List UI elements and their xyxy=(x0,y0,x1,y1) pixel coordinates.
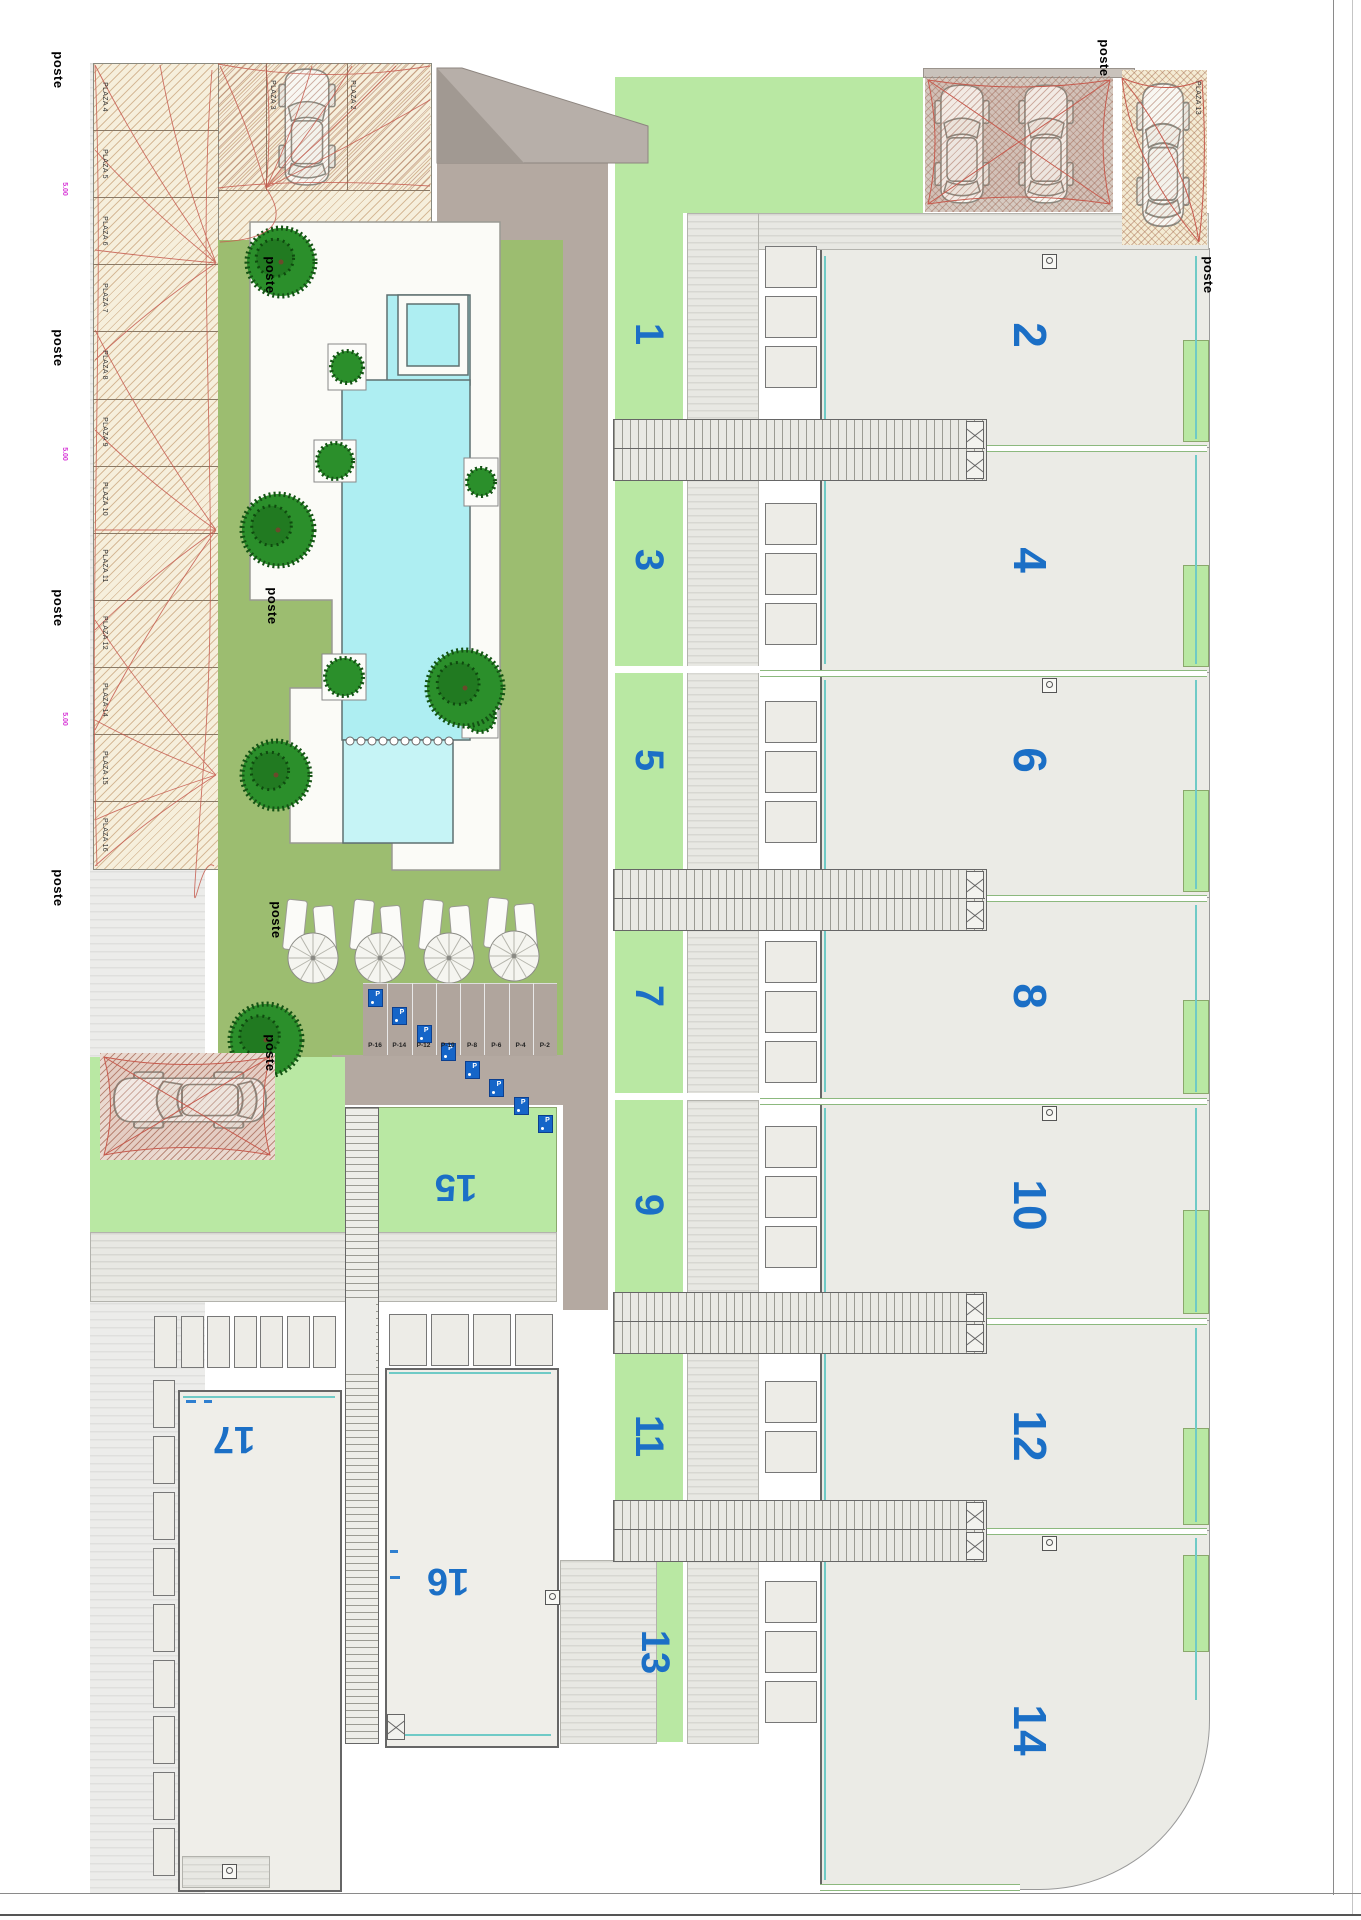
pool-rope-float xyxy=(357,737,365,745)
light-post-marker xyxy=(222,1864,237,1879)
dimension-text: 5.00 xyxy=(59,436,69,472)
unit-number: 5 xyxy=(624,705,674,815)
carport-sail-hatch xyxy=(925,76,1113,212)
unit-number: 17 xyxy=(179,1413,289,1463)
pool-rope-float xyxy=(368,737,376,745)
unit-number: 13 xyxy=(630,1597,680,1707)
stairs-landing-line xyxy=(613,898,985,899)
pool-rope-float xyxy=(434,737,442,745)
poste-label: poste xyxy=(268,888,284,952)
pool-rope-float xyxy=(401,737,409,745)
street-stall-label: P-16 xyxy=(363,1041,387,1051)
plaza-stall-label: PLAZA 14 xyxy=(98,668,110,732)
poste-label: poste xyxy=(264,574,280,638)
unit-number: 3 xyxy=(624,505,674,615)
street-stall-label: P-12 xyxy=(412,1041,436,1051)
parking-sign-letter: P xyxy=(424,1027,429,1034)
planter-tree-icon xyxy=(322,654,366,700)
plaza-stall-label: PLAZA 4 xyxy=(98,65,110,129)
light-post-marker xyxy=(1042,678,1057,693)
pool-rope-float xyxy=(379,737,387,745)
plaza-stall-label: PLAZA 3 xyxy=(266,65,278,125)
stair-x-box xyxy=(966,1294,984,1322)
unit-number: 12 xyxy=(1002,1376,1058,1496)
parking-sign-letter: P xyxy=(400,1009,405,1016)
stairs-band xyxy=(613,1292,987,1354)
pool-rope-float xyxy=(390,737,398,745)
unit-17-teal-top xyxy=(183,1396,335,1398)
plaza-stall-label: PLAZA 9 xyxy=(98,400,110,464)
plaza-stall-label: PLAZA 2 xyxy=(346,65,358,125)
light-post-marker xyxy=(1042,254,1057,269)
pool-rope-float xyxy=(423,737,431,745)
poste-label: poste xyxy=(1200,243,1216,307)
site-plan-page: JACUZZI PISCINA 61,23 ZONA INFANTIL xyxy=(0,0,1361,1920)
poste-label: poste xyxy=(50,856,66,920)
unit-16-teal-top xyxy=(389,1372,551,1374)
street-stall-label: P-10 xyxy=(436,1041,460,1051)
plaza-stall-label: PLAZA 16 xyxy=(98,803,110,867)
plaza-stall-label: PLAZA 15 xyxy=(98,736,110,800)
stair-x-box xyxy=(966,451,984,479)
entrance-roof xyxy=(437,68,648,163)
umbrella-icon xyxy=(483,897,539,981)
tree-icon xyxy=(242,741,310,809)
unit-number: 10 xyxy=(1002,1145,1058,1265)
poste-label: poste xyxy=(262,1021,278,1085)
plaza-stall-label: PLAZA 6 xyxy=(98,199,110,263)
parking-sign-letter: P xyxy=(472,1063,477,1070)
jacuzzi-pool xyxy=(407,304,459,366)
unit-number: 4 xyxy=(1002,500,1058,620)
dimension-text: 5.00 xyxy=(59,701,69,737)
tree-icon xyxy=(427,650,503,726)
plan-graphics xyxy=(0,0,1361,1920)
frame-bottom-inner xyxy=(0,1893,1361,1894)
parking-sign-icon: P xyxy=(514,1097,529,1115)
parking-sign-icon: P xyxy=(465,1061,480,1079)
stair-x-box xyxy=(966,421,984,449)
unit-number: 8 xyxy=(1002,936,1058,1056)
street-stall-label: P-4 xyxy=(509,1041,533,1051)
stairs-band xyxy=(613,419,987,481)
bottom-sail-hatch xyxy=(100,1053,275,1160)
poste-label: poste xyxy=(50,576,66,640)
unit-number: 1 xyxy=(624,279,674,389)
planter-tree-icon xyxy=(464,458,498,506)
stairs-landing-line xyxy=(613,448,985,449)
umbrella-icon xyxy=(349,899,405,983)
unit-number: 9 xyxy=(624,1150,674,1260)
parking-sign-icon: P xyxy=(538,1115,553,1133)
plaza-stall-label: PLAZA 5 xyxy=(98,132,110,196)
frame-right-outer xyxy=(1352,0,1353,1914)
street-stall-label: P-6 xyxy=(484,1041,508,1051)
unit-number: 7 xyxy=(624,941,674,1051)
unit-16-stair-box xyxy=(387,1714,405,1740)
light-post-marker xyxy=(1042,1106,1057,1121)
unit-number: 11 xyxy=(624,1381,674,1491)
umbrella-icon xyxy=(418,899,474,983)
unit-number: 6 xyxy=(1002,700,1058,820)
stairs-landing-line xyxy=(613,1321,985,1322)
plaza-stall-label: PLAZA 11 xyxy=(98,534,110,598)
stairs-band xyxy=(613,869,987,931)
pool-rope-float xyxy=(346,737,354,745)
umbrella-icon xyxy=(282,899,338,983)
stair-x-box xyxy=(966,1324,984,1352)
street-stall-label: P-2 xyxy=(533,1041,557,1051)
tree-icon xyxy=(242,494,314,566)
unit-17-mark-b xyxy=(204,1400,212,1403)
unit-16-teal-bottom xyxy=(389,1734,551,1736)
dimension-text: 5.00 xyxy=(59,171,69,207)
pool-rope-float xyxy=(412,737,420,745)
parking-sign-icon: P xyxy=(392,1007,407,1025)
light-post-marker xyxy=(1042,1536,1057,1551)
stair-x-box xyxy=(966,901,984,929)
frame-right-inner xyxy=(1333,0,1334,1895)
unit-17-mark-a xyxy=(186,1400,196,1403)
unit-number: 2 xyxy=(1002,275,1058,395)
light-post-marker xyxy=(545,1590,560,1605)
pool-rope-float xyxy=(445,737,453,745)
poste-label: poste xyxy=(1096,26,1112,90)
plaza-stall-label: PLAZA 13 xyxy=(1191,68,1203,128)
planter-tree-icon xyxy=(314,440,356,482)
plaza-stall-label: PLAZA 10 xyxy=(98,467,110,531)
frame-bottom-outer xyxy=(0,1914,1361,1916)
stair-x-box xyxy=(966,871,984,899)
tree-icon xyxy=(247,228,315,296)
stair-x-box xyxy=(966,1532,984,1560)
poste-label: poste xyxy=(50,38,66,102)
stairs-band xyxy=(613,1500,987,1562)
poste-label: poste xyxy=(262,243,278,307)
unit-number: 14 xyxy=(1002,1670,1058,1790)
parking-sign-letter: P xyxy=(545,1117,550,1124)
unit-number: 16 xyxy=(393,1555,503,1605)
plaza-stall-label: PLAZA 12 xyxy=(98,601,110,665)
unit-number: 15 xyxy=(401,1161,511,1211)
kids-pool xyxy=(343,740,453,843)
plaza-stall-label: PLAZA 7 xyxy=(98,266,110,330)
parking-sign-icon: P xyxy=(368,989,383,1007)
poste-label: poste xyxy=(50,316,66,380)
parking-sign-letter: P xyxy=(521,1099,526,1106)
street-stall-label: P-14 xyxy=(387,1041,411,1051)
planter-tree-icon xyxy=(328,344,366,390)
street-stall-label: P-8 xyxy=(460,1041,484,1051)
parking-sign-icon: P xyxy=(489,1079,504,1097)
parking-sign-letter: P xyxy=(375,991,380,998)
unit-16-mark-a xyxy=(390,1550,398,1553)
top-bank-sail-hatch xyxy=(218,63,430,190)
stairs-landing-line xyxy=(613,1529,985,1530)
stair-x-box xyxy=(966,1502,984,1530)
parking-sign-letter: P xyxy=(497,1081,502,1088)
plaza-stall-label: PLAZA 8 xyxy=(98,333,110,397)
